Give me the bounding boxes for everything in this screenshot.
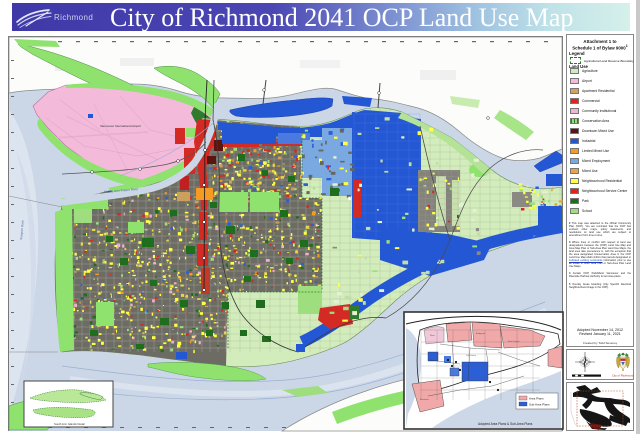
svg-text:Adopted Area Plans & Sub-Area: Adopted Area Plans & Sub-Area Plans [478,422,533,426]
svg-text:City Centre: City Centre [466,354,477,357]
svg-text:South Arm Islands Detail: South Arm Islands Detail [54,422,85,426]
svg-text:Vancouver International Airpor: Vancouver International Airport [100,124,141,128]
svg-text:West: West [430,334,435,337]
svg-text:Area Plans: Area Plans [529,397,544,401]
svg-text:Steveston: Steveston [420,398,429,401]
svg-text:City of Richmond: City of Richmond [612,374,634,378]
svg-text:Bridgeport: Bridgeport [476,332,486,335]
svg-text:East Cambie: East Cambie [508,340,520,343]
svg-text:Sub Area Plans: Sub Area Plans [529,403,550,407]
